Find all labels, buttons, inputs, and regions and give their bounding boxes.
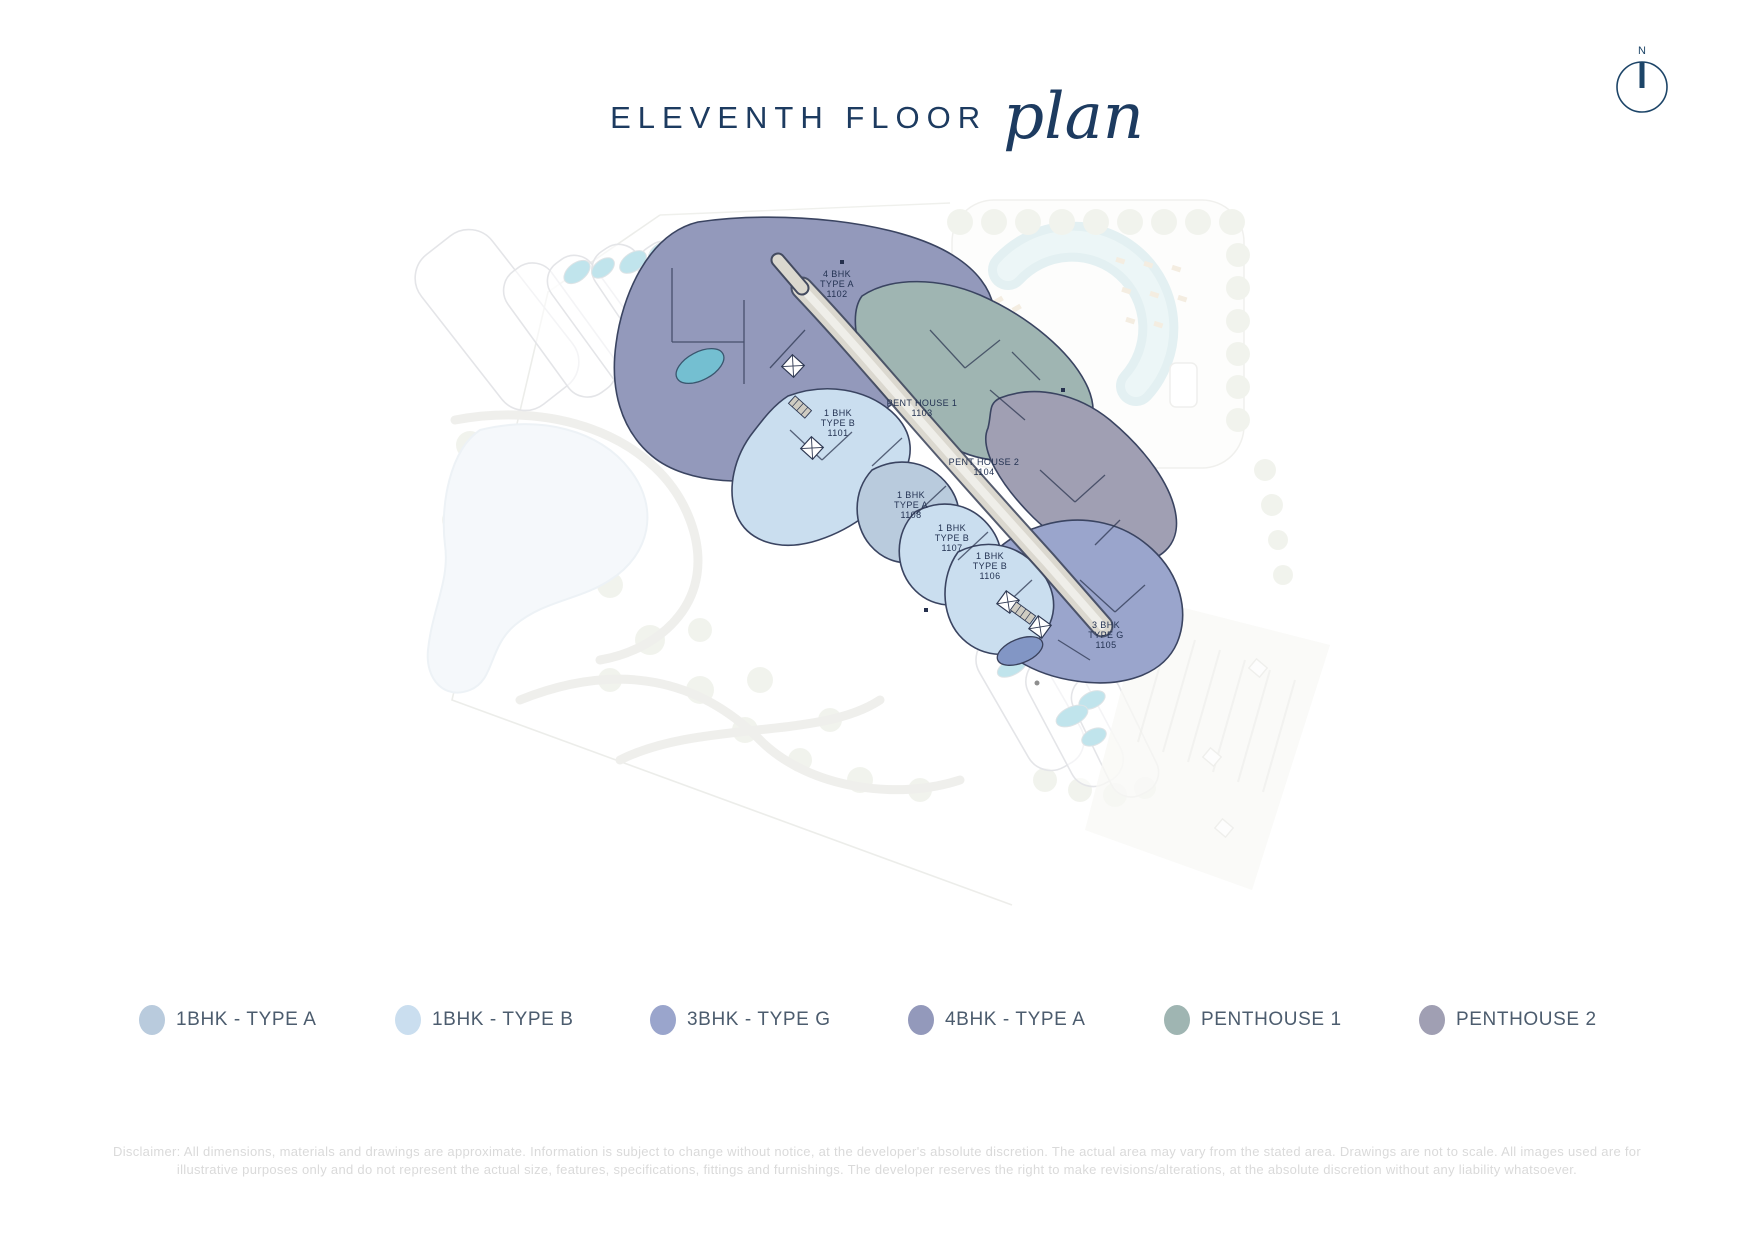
legend-item-penthouse-1: PENTHOUSE 1 (1163, 1002, 1342, 1038)
legend-label: PENTHOUSE 2 (1456, 1009, 1597, 1031)
compass-north-icon: N (1606, 36, 1678, 120)
legend-label: 1BHK - TYPE B (432, 1009, 574, 1031)
legend-dot-4bhk-type-a (907, 1003, 935, 1037)
legend-label: 4BHK - TYPE A (945, 1009, 1086, 1031)
legend-item-1bhk-type-a: 1BHK - TYPE A (138, 1002, 317, 1038)
svg-text:1103: 1103 (912, 408, 933, 418)
legend-label: PENTHOUSE 1 (1201, 1009, 1342, 1031)
svg-text:1107: 1107 (942, 543, 963, 553)
legend-dot-1bhk-type-a (138, 1003, 166, 1037)
disclaimer-line-2: illustrative purposes only and do not re… (0, 1161, 1754, 1179)
site-dot (1035, 681, 1040, 686)
svg-text:1101: 1101 (828, 428, 849, 438)
legend-item-penthouse-2: PENTHOUSE 2 (1418, 1002, 1597, 1038)
legend-item-3bhk-type-g: 3BHK - TYPE G (649, 1002, 831, 1038)
svg-text:4 BHK: 4 BHK (823, 269, 851, 279)
svg-text:TYPE G: TYPE G (1088, 630, 1123, 640)
page-title-script: plan (1003, 80, 1144, 154)
svg-text:TYPE A: TYPE A (894, 500, 928, 510)
compass-n-label: N (1638, 45, 1646, 57)
svg-text:3 BHK: 3 BHK (1092, 620, 1120, 630)
page-title-main: ELEVENTH FLOOR (610, 100, 987, 136)
svg-text:1104: 1104 (974, 467, 995, 477)
svg-text:1102: 1102 (827, 289, 848, 299)
legend-label: 3BHK - TYPE G (687, 1009, 831, 1031)
svg-text:1105: 1105 (1096, 640, 1117, 650)
svg-text:1 BHK: 1 BHK (976, 551, 1004, 561)
svg-text:1 BHK: 1 BHK (938, 523, 966, 533)
svg-text:TYPE B: TYPE B (973, 561, 1007, 571)
svg-text:TYPE B: TYPE B (935, 533, 969, 543)
svg-text:TYPE A: TYPE A (820, 279, 854, 289)
page-title: ELEVENTH FLOOR plan (0, 70, 1754, 144)
svg-text:1106: 1106 (980, 571, 1001, 581)
svg-text:1108: 1108 (901, 510, 922, 520)
svg-text:TYPE B: TYPE B (821, 418, 855, 428)
legend-dot-penthouse-2 (1418, 1003, 1446, 1037)
legend-dot-3bhk-type-g (649, 1003, 677, 1037)
legend-item-4bhk-type-a: 4BHK - TYPE A (907, 1002, 1086, 1038)
compass-needle (1640, 62, 1645, 88)
page-root: ELEVENTH FLOOR plan N (0, 0, 1754, 1241)
svg-text:1 BHK: 1 BHK (824, 408, 852, 418)
svg-text:PENT HOUSE 1: PENT HOUSE 1 (887, 398, 958, 408)
svg-text:1 BHK: 1 BHK (897, 490, 925, 500)
svg-text:PENT HOUSE 2: PENT HOUSE 2 (949, 457, 1020, 467)
disclaimer: Disclaimer: All dimensions, materials an… (0, 1143, 1754, 1179)
legend-dot-penthouse-1 (1163, 1003, 1191, 1037)
legend-item-1bhk-type-b: 1BHK - TYPE B (394, 1002, 574, 1038)
disclaimer-line-1: Disclaimer: All dimensions, materials an… (0, 1143, 1754, 1161)
floor-plan: 4 BHK TYPE A 1102 1 BHK TYPE B 1101 PENT… (0, 0, 1754, 1241)
legend-dot-1bhk-type-b (394, 1003, 422, 1037)
legend-label: 1BHK - TYPE A (176, 1009, 317, 1031)
